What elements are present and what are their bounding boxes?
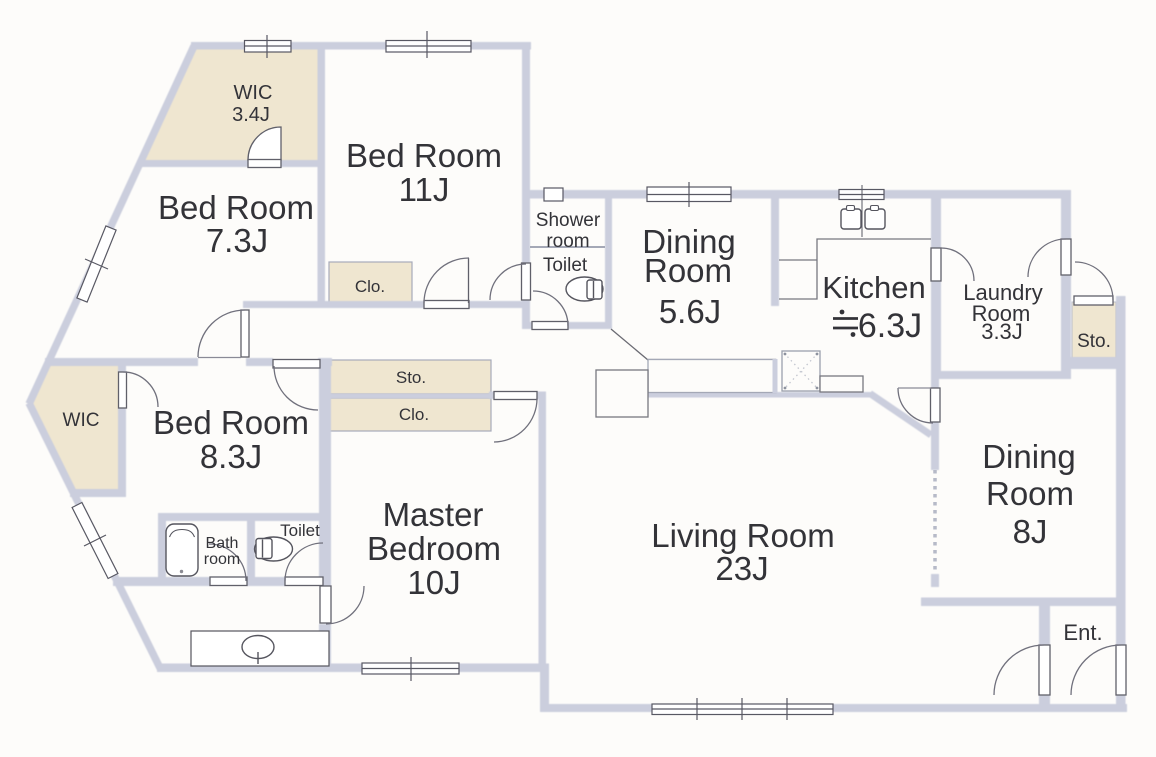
svg-text:3.4J: 3.4J — [232, 104, 270, 126]
svg-text:Room: Room — [644, 252, 732, 289]
svg-text:8.3J: 8.3J — [200, 438, 262, 475]
svg-text:7.3J: 7.3J — [206, 222, 268, 259]
svg-text:Master: Master — [383, 496, 484, 533]
svg-text:Bed Room: Bed Room — [153, 404, 309, 441]
svg-text:Room: Room — [986, 475, 1074, 512]
svg-text:Dining: Dining — [982, 438, 1076, 475]
svg-text:3.3J: 3.3J — [981, 319, 1023, 344]
svg-text:Shower: Shower — [536, 210, 601, 231]
svg-text:Clo.: Clo. — [355, 277, 385, 296]
svg-text:Toilet: Toilet — [543, 255, 588, 276]
svg-text:WIC: WIC — [234, 82, 273, 104]
svg-text:10J: 10J — [407, 564, 460, 601]
svg-text:Kitchen: Kitchen — [822, 270, 925, 305]
svg-text:6.3J: 6.3J — [858, 307, 922, 345]
svg-text:Sto.: Sto. — [1077, 331, 1111, 352]
svg-text:Ent.: Ent. — [1063, 620, 1102, 645]
svg-text:Bedroom: Bedroom — [367, 530, 501, 567]
svg-text:Toilet: Toilet — [280, 521, 320, 540]
svg-text:room: room — [204, 551, 240, 568]
svg-text:Bed Room: Bed Room — [158, 189, 314, 226]
svg-text:WIC: WIC — [63, 410, 100, 431]
svg-text:Sto.: Sto. — [396, 368, 426, 387]
svg-text:Living Room: Living Room — [651, 517, 834, 554]
svg-text:Clo.: Clo. — [399, 405, 429, 424]
svg-text:5.6J: 5.6J — [659, 293, 721, 330]
svg-text:11J: 11J — [399, 171, 450, 208]
svg-text:23J: 23J — [715, 550, 768, 587]
svg-text:8J: 8J — [1013, 513, 1048, 550]
svg-text:room: room — [546, 231, 589, 252]
svg-text:Bed Room: Bed Room — [346, 137, 502, 174]
svg-text:Bath: Bath — [206, 535, 239, 552]
